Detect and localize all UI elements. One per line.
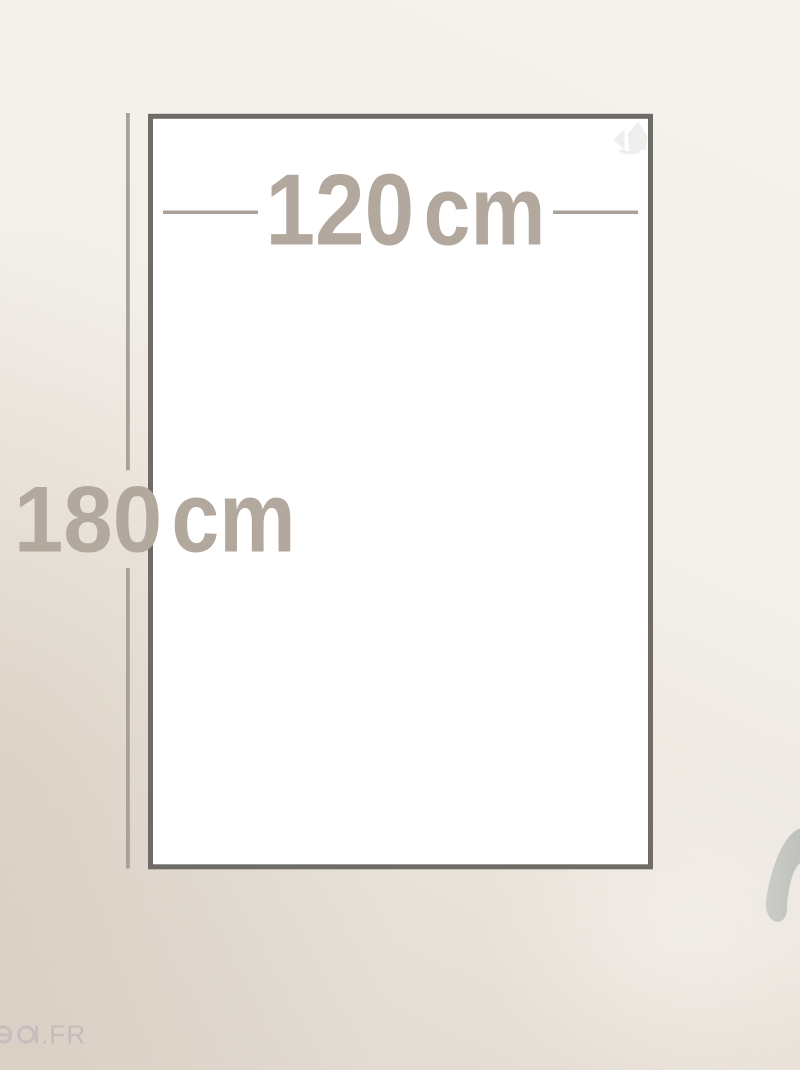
svg-text:120: 120 [265, 154, 414, 267]
svg-text:.FR: .FR [41, 1020, 86, 1050]
svg-text:cm: cm [171, 460, 295, 573]
svg-text:180: 180 [14, 467, 162, 572]
svg-text:cm: cm [424, 156, 546, 266]
